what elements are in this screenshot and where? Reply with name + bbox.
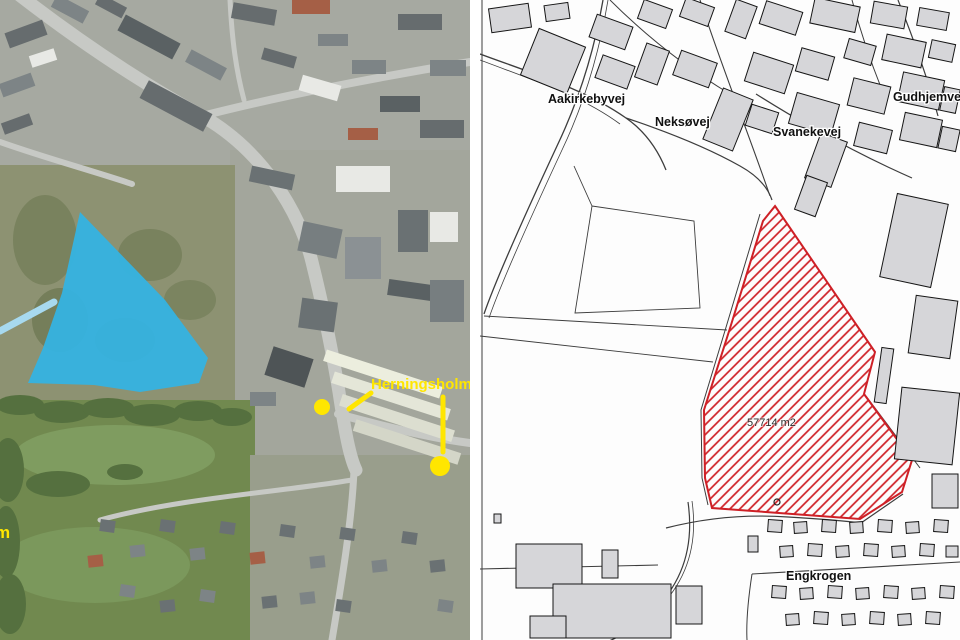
building-roof: [87, 554, 103, 568]
tree-cluster: [124, 404, 180, 426]
aerial-photo-svg: Herningsholm m: [0, 0, 470, 640]
tree-cluster: [34, 401, 90, 423]
building-footprint: [589, 14, 633, 50]
building-footprint: [906, 522, 920, 534]
building-roof: [339, 527, 356, 541]
building-footprint: [874, 347, 894, 403]
building-footprint: [489, 3, 532, 32]
building-footprint: [856, 588, 870, 600]
building-footprint: [759, 1, 803, 36]
building-roof: [292, 0, 330, 14]
aerial-photo-panel: Herningsholm m: [0, 0, 470, 640]
building-footprint: [814, 612, 829, 625]
building-footprint: [810, 0, 860, 32]
building-footprint: [938, 126, 960, 151]
building-roof: [189, 547, 205, 561]
building-footprint: [836, 546, 850, 558]
yellow-marker-dot: [314, 399, 330, 415]
building-roof: [420, 120, 464, 138]
tree-cluster: [212, 408, 252, 426]
building-footprint: [900, 112, 943, 147]
parcel-area-label: 57714 m2: [747, 417, 796, 429]
building-roof: [345, 237, 381, 279]
building-roof: [401, 531, 418, 545]
building-roof: [335, 599, 352, 613]
building-footprint: [635, 43, 670, 85]
building-footprint: [595, 55, 635, 89]
building-footprint: [725, 0, 757, 39]
building-footprint: [795, 48, 834, 80]
building-footprint: [768, 520, 783, 533]
building-footprint: [822, 520, 837, 533]
street-label-aakirkebyvej: Aakirkebyvej: [548, 92, 625, 106]
building-roof: [119, 584, 136, 598]
tree-cluster: [107, 464, 143, 480]
building-footprint: [794, 522, 808, 534]
building-footprint: [780, 546, 794, 558]
building-footprint: [744, 52, 793, 94]
building-footprint: [772, 586, 787, 599]
building-footprint: [934, 520, 949, 533]
building-roof: [398, 14, 442, 30]
building-roof: [99, 519, 116, 533]
herningsholm-label: Herningsholm: [371, 376, 470, 393]
map-line: [480, 336, 713, 362]
building-footprint: [602, 550, 618, 578]
map-line: [575, 206, 700, 313]
map-line: [574, 166, 592, 206]
building-footprint: [520, 28, 585, 93]
yellow-marker-dot: [430, 456, 450, 476]
building-roof: [352, 60, 386, 74]
building-footprint: [795, 175, 828, 216]
partial-left-edge-label: m: [0, 523, 10, 542]
building-footprint: [926, 612, 941, 625]
building-footprint: [917, 8, 950, 31]
building-roof: [129, 544, 145, 558]
building-roof: [437, 599, 454, 613]
building-footprint: [870, 612, 885, 625]
building-footprint: [844, 39, 876, 66]
building-footprint: [912, 588, 926, 600]
panel-divider: [470, 0, 480, 640]
cadastral-map-panel: Aakirkebyvej Neksøvej Svanekevej Gudhjem…: [480, 0, 960, 640]
building-roof: [430, 60, 466, 76]
building-footprint: [854, 122, 893, 154]
building-roof: [309, 555, 325, 569]
building-roof: [299, 591, 315, 605]
building-roof: [371, 559, 387, 573]
tree-cluster: [26, 471, 90, 497]
building-footprint: [892, 546, 906, 558]
building-footprint: [828, 586, 843, 599]
building-roof: [261, 595, 277, 609]
building-roof: [219, 521, 236, 535]
building-roof: [159, 599, 175, 613]
building-footprint: [894, 387, 959, 465]
building-footprint: [882, 34, 927, 68]
building-footprint: [842, 614, 856, 626]
map-line: [626, 118, 772, 200]
building-footprint: [946, 546, 958, 557]
building-footprint: [673, 50, 718, 87]
building-footprint: [748, 536, 758, 552]
building-footprint: [494, 514, 501, 523]
building-roof: [249, 551, 265, 565]
building-footprint: [884, 586, 899, 599]
map-line: [747, 574, 752, 640]
building-footprint: [637, 0, 672, 29]
building-footprint: [908, 295, 958, 358]
building-footprint: [703, 88, 753, 151]
building-roof: [250, 392, 276, 406]
building-footprint: [864, 544, 879, 557]
street-label-engkrogen: Engkrogen: [786, 569, 851, 583]
street-label-gudhjemvej: Gudhjemvej: [893, 90, 960, 104]
map-comparison-screenshot: Herningsholm m Aakirkebyvej Neksøvej Sva…: [0, 0, 960, 640]
building-roof: [298, 298, 338, 333]
building-footprint: [553, 584, 671, 638]
building-footprint: [544, 2, 570, 21]
building-roof: [430, 212, 458, 242]
building-footprint: [898, 614, 912, 626]
cadastral-map-svg: Aakirkebyvej Neksøvej Svanekevej Gudhjem…: [480, 0, 960, 640]
building-footprint: [878, 520, 893, 533]
building-roof: [318, 34, 348, 46]
map-line: [752, 562, 960, 574]
map-line: [484, 316, 727, 330]
building-footprint: [800, 588, 814, 600]
building-footprint: [940, 586, 955, 599]
building-footprint: [850, 522, 864, 534]
building-footprint: [932, 474, 958, 508]
building-footprint: [679, 0, 714, 27]
street-label-neksoevej: Neksøvej: [655, 115, 710, 129]
building-footprint: [676, 586, 702, 624]
building-roof: [398, 210, 428, 252]
building-footprint: [516, 544, 582, 588]
building-footprint: [870, 1, 907, 29]
building-footprint: [880, 194, 949, 288]
building-roof: [430, 280, 464, 322]
building-footprint: [847, 78, 891, 114]
building-footprint: [786, 614, 800, 626]
street-label-svanekevej: Svanekevej: [773, 125, 841, 139]
building-roof: [279, 524, 296, 538]
building-roof: [159, 519, 176, 533]
building-footprint: [530, 616, 566, 638]
building-footprint: [920, 544, 935, 557]
building-roof: [336, 166, 390, 192]
building-roof: [348, 128, 378, 140]
building-footprint: [808, 544, 823, 557]
building-roof: [199, 589, 216, 603]
terrain-region: [250, 455, 470, 640]
building-roof: [380, 96, 420, 112]
building-footprint: [928, 40, 955, 63]
building-roof: [429, 559, 445, 573]
